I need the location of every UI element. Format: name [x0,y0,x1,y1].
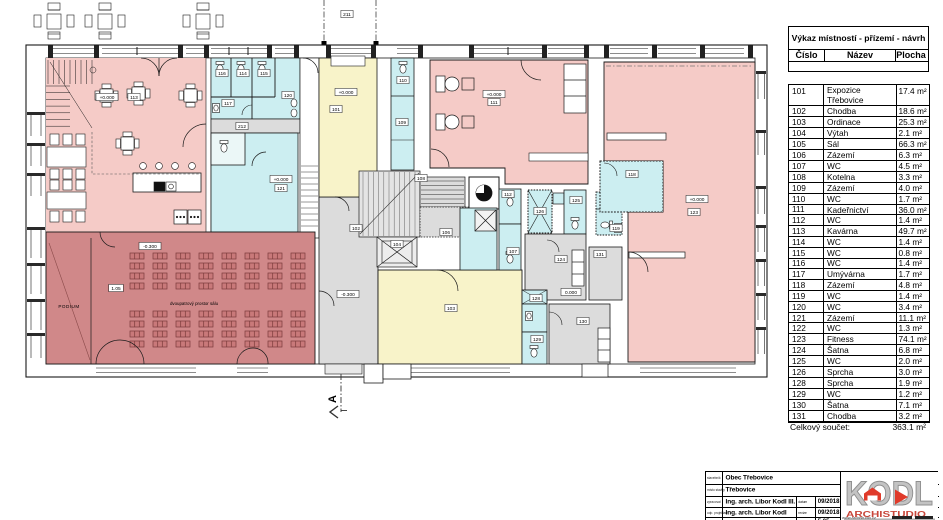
svg-text:123: 123 [690,210,698,216]
svg-text:119: 119 [612,226,620,232]
svg-text:106: 106 [442,230,450,236]
svg-text:PODIUM: PODIUM [58,304,79,309]
svg-text:-0.300: -0.300 [143,244,157,250]
svg-text:121: 121 [277,186,285,192]
svg-text:211: 211 [343,12,351,18]
svg-text:128: 128 [532,296,540,302]
svg-text:108: 108 [417,176,425,182]
svg-text:0.000: 0.000 [565,290,577,296]
svg-text:dvoupatrový prostor sálu: dvoupatrový prostor sálu [170,301,219,306]
svg-text:124: 124 [557,257,565,263]
svg-text:116: 116 [218,71,226,77]
svg-text:126: 126 [536,209,544,215]
svg-text:117: 117 [224,101,232,107]
svg-text:129: 129 [533,337,541,343]
svg-text:101: 101 [332,107,340,113]
svg-text:114: 114 [239,71,247,77]
svg-text:+0.000: +0.000 [100,95,115,101]
svg-text:131: 131 [596,252,604,258]
svg-text:103: 103 [447,306,455,312]
svg-text:115: 115 [260,71,268,77]
svg-text:112: 112 [504,192,512,198]
svg-text:1.05: 1.05 [111,286,121,292]
svg-text:107: 107 [509,249,517,255]
svg-text:118: 118 [628,172,636,178]
svg-text:+0.000: +0.000 [274,177,289,183]
svg-text:A: A [327,395,339,403]
svg-text:111: 111 [490,100,498,106]
svg-text:125: 125 [572,198,580,204]
svg-text:110: 110 [399,78,407,84]
svg-text:113: 113 [130,95,138,101]
svg-text:102: 102 [352,226,360,232]
svg-text:+0.000: +0.000 [487,92,502,98]
svg-text:104: 104 [393,242,401,248]
svg-text:-0.300: -0.300 [341,292,355,298]
svg-text:KODL: KODL [845,475,933,513]
svg-text:109: 109 [398,120,406,126]
svg-text:212: 212 [238,124,246,130]
svg-text:120: 120 [284,93,292,99]
svg-text:130: 130 [579,319,587,325]
svg-text:+0.000: +0.000 [690,197,705,203]
svg-text:+0.000: +0.000 [339,90,354,96]
